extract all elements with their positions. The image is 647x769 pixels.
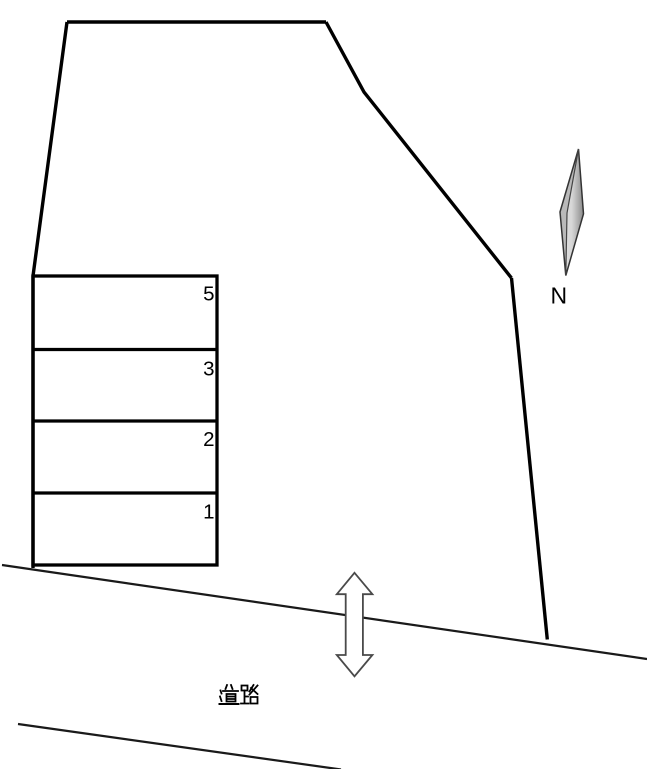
svg-text:5: 5 [203,283,214,306]
svg-text:3: 3 [203,358,214,381]
svg-text:1: 1 [203,501,214,524]
svg-text:N: N [550,283,567,309]
svg-text:2: 2 [203,428,214,451]
